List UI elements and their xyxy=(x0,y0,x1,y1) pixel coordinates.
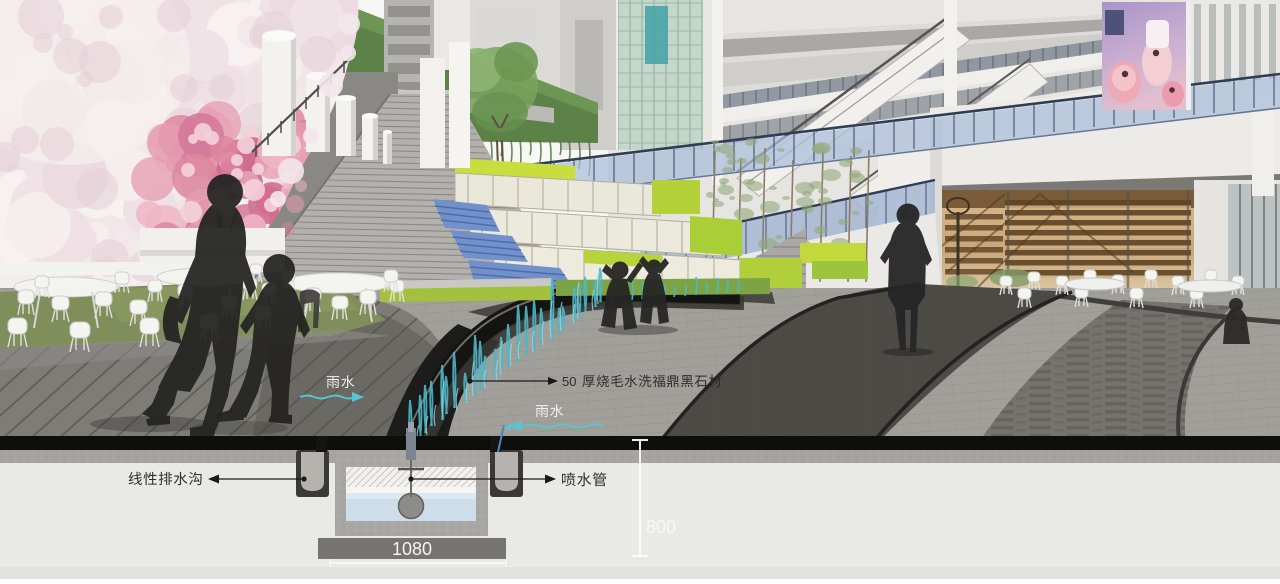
svg-text:1080: 1080 xyxy=(392,539,432,559)
svg-text:800: 800 xyxy=(646,517,676,537)
svg-text:50: 50 xyxy=(562,374,576,389)
